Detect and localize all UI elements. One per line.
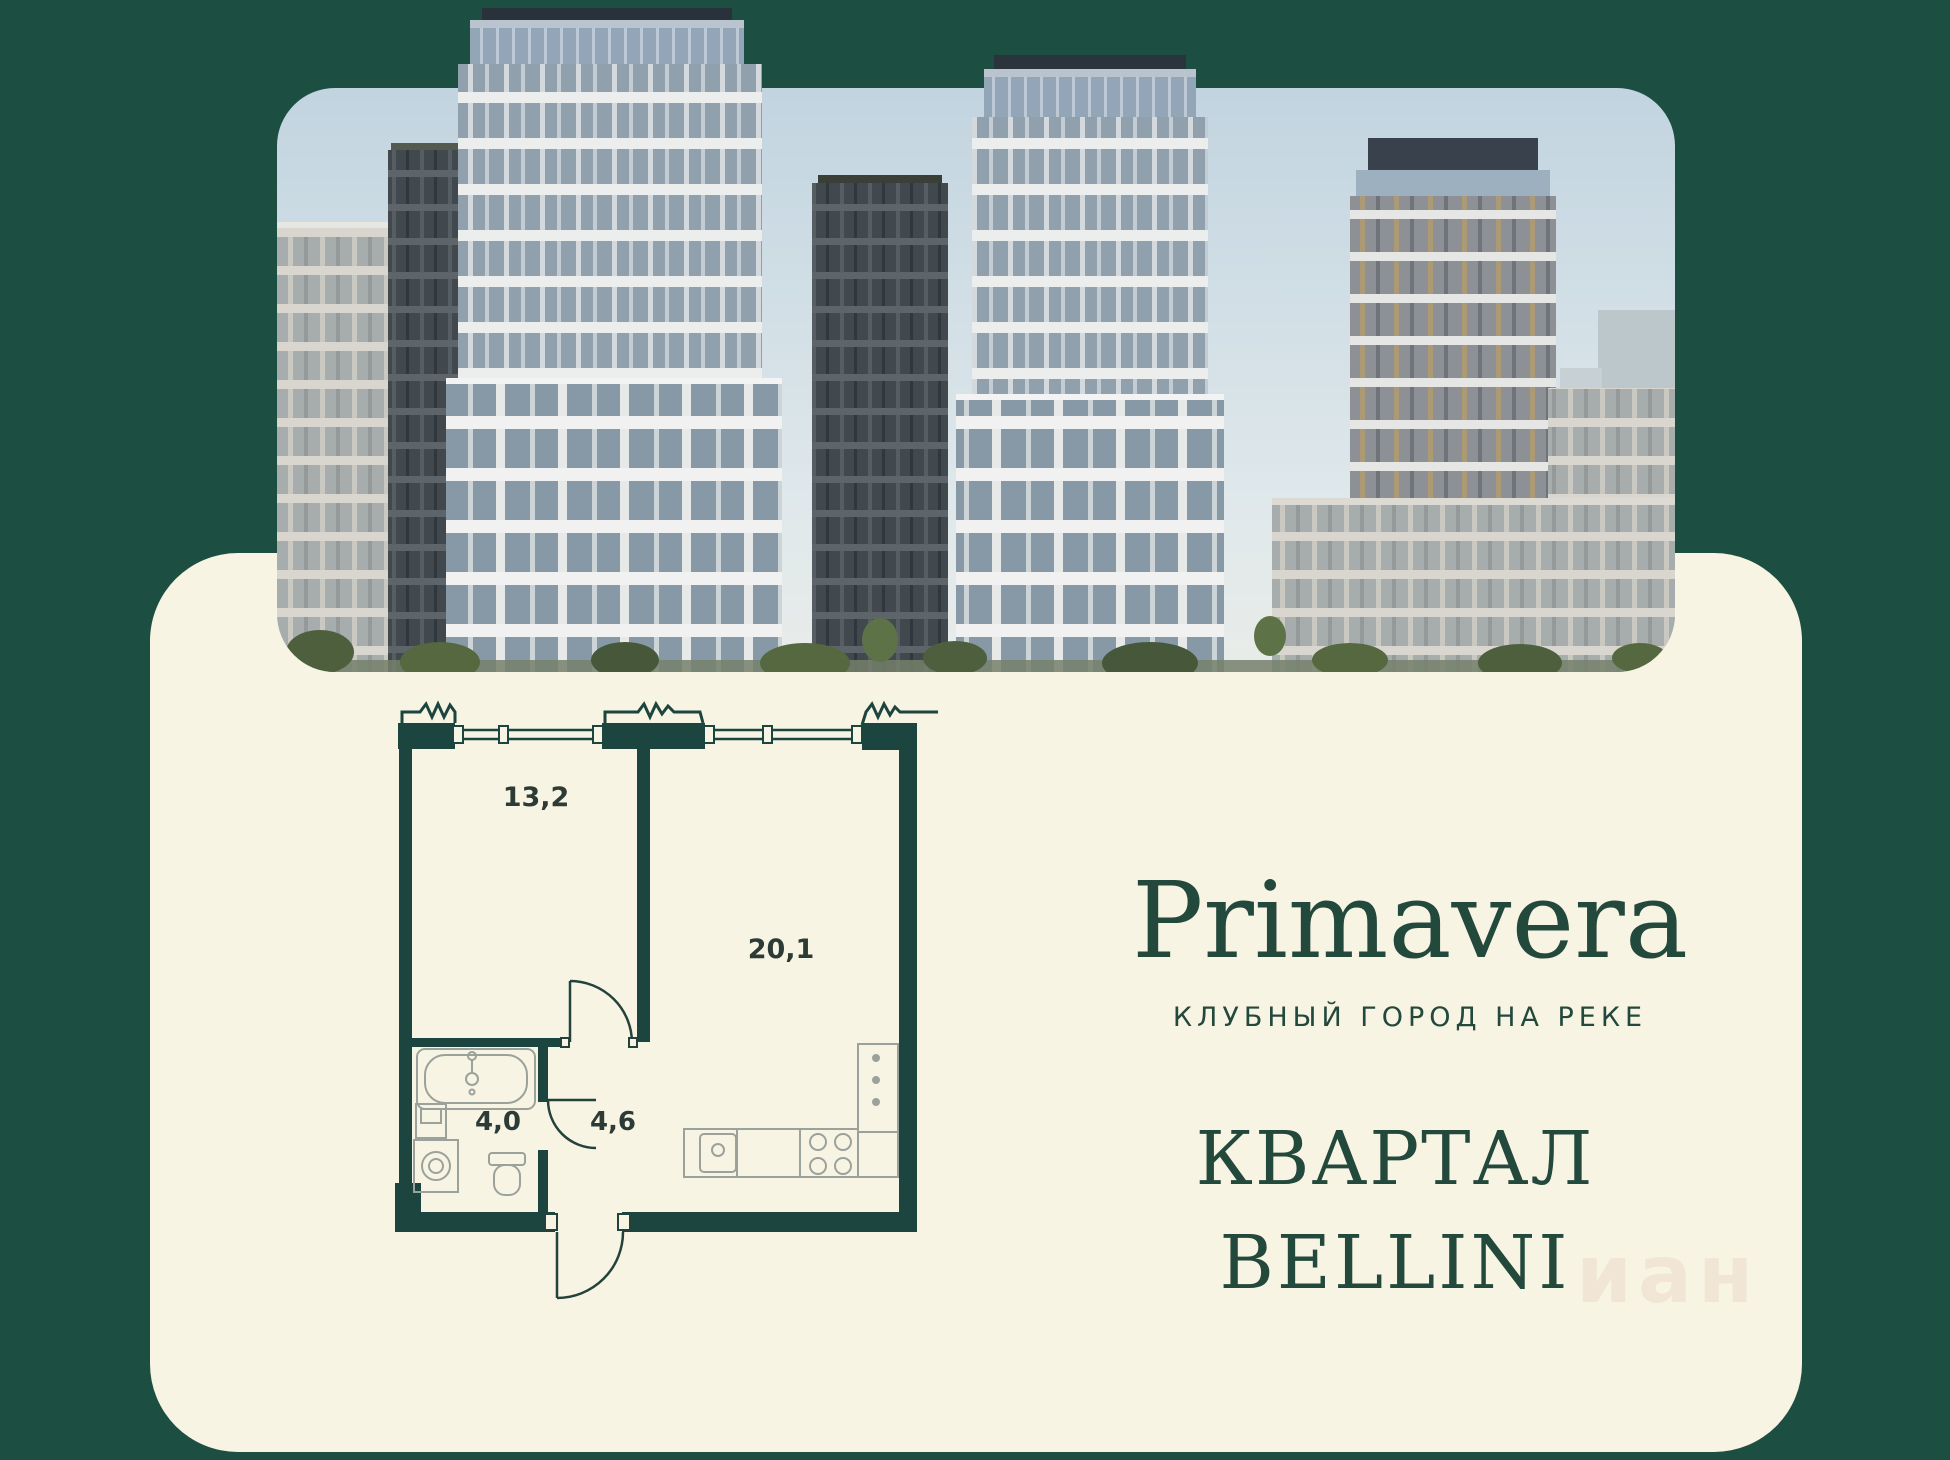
fridge-column: [858, 1044, 898, 1177]
room-door: [570, 981, 632, 1043]
brand-block: Primavera КЛУБНЫЙ ГОРОД НА РЕКЕ: [1010, 868, 1810, 1033]
left-slab-building: [277, 228, 395, 672]
toilet: [489, 1153, 525, 1195]
ad-card: 13,2 20,1 4,0 4,6 Primavera КЛУБНЫЙ ГОРО…: [0, 0, 1950, 1460]
bathtub: [417, 1049, 535, 1109]
room-area-label: 4,0: [475, 1107, 521, 1137]
room-area-label: 13,2: [503, 782, 570, 813]
glass-tower: [446, 8, 782, 672]
doors: [545, 981, 637, 1298]
brand-logo: Primavera: [1010, 868, 1810, 974]
watermark: иан: [1576, 1228, 1796, 1321]
white-tower: [956, 55, 1224, 672]
kitchen-sink: [700, 1134, 736, 1172]
bathroom-door: [548, 1100, 596, 1148]
room-area-label: 4,6: [590, 1107, 636, 1137]
buildings-photo: [250, 0, 1690, 680]
stove-burners: [810, 1134, 851, 1174]
kitchen-counter: [684, 1129, 858, 1177]
wall-break-marks: [402, 704, 938, 725]
quarter-line1: КВАРТАЛ: [995, 1122, 1795, 1196]
dark-center-tower: [812, 183, 948, 672]
room-area-label: 20,1: [748, 934, 815, 965]
brand-tagline: КЛУБНЫЙ ГОРОД НА РЕКЕ: [1010, 1002, 1810, 1033]
bath-cabinet: [416, 1104, 446, 1138]
entrance-door: [557, 1232, 623, 1298]
walls: [395, 723, 917, 1232]
floor-plan: 13,2 20,1 4,0 4,6: [385, 695, 950, 1330]
